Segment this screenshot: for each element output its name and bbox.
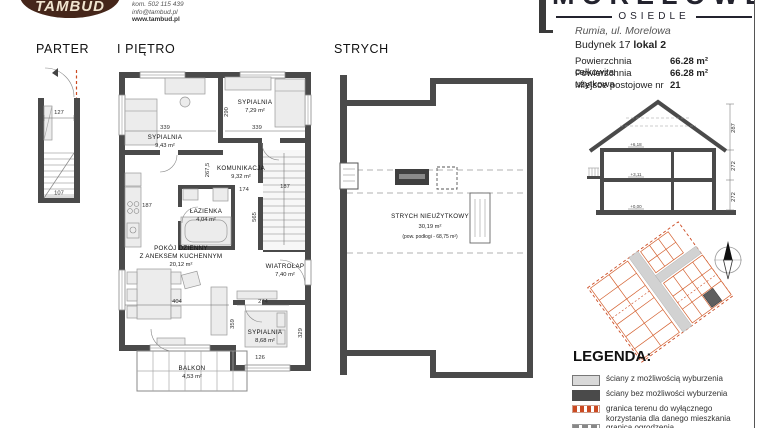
north-arrow-icon	[714, 241, 742, 279]
building-section-drawing: 287 272 272 +6,18 +3,11 +0,00	[582, 88, 750, 220]
legend-title: LEGENDA:	[573, 348, 651, 365]
site-plan	[596, 226, 754, 360]
room-bedroom1: SYPIALNIA	[148, 134, 183, 141]
sofa	[211, 287, 227, 335]
contact-website: www.tambud.pl	[132, 16, 184, 24]
attic-name: STRYCH NIEUŻYTKOWY	[391, 213, 469, 220]
label-strych: STRYCH	[334, 42, 389, 56]
dining-table	[137, 269, 171, 319]
dim: 274	[258, 299, 268, 305]
page-right-border	[754, 0, 755, 428]
estate-lots	[588, 222, 733, 362]
room-area: 7,29 m²	[245, 108, 265, 114]
room-vestibule: WIATROŁAP	[266, 263, 305, 270]
legend-text: ściany bez możliwości wyburzenia	[606, 389, 727, 399]
level-ground: +0,00	[630, 204, 642, 209]
parter-plan: 127 107	[25, 58, 115, 243]
attic-plan: STRYCH NIEUŻYTKOWY 30,19 m² (pow. podłog…	[333, 57, 539, 387]
building-label: Budynek 17	[575, 39, 630, 51]
room-area: 4,53 m²	[182, 374, 202, 380]
project-address: Rumia, ul. Morelowa	[575, 25, 671, 37]
dim: 174	[239, 187, 249, 193]
dim-floor1-height: 272	[731, 161, 737, 171]
room-area: 7,40 m²	[275, 272, 295, 278]
dim: 290	[224, 107, 230, 117]
attic-area: 30,19 m²	[419, 224, 442, 230]
swatch-dark-wall	[572, 390, 600, 401]
sink	[183, 189, 198, 200]
room-area: 8,68 m²	[255, 338, 275, 344]
dim: 339	[252, 125, 262, 131]
dim: 565	[252, 212, 258, 222]
dim: 187	[142, 203, 152, 209]
estate-row: OSIEDLE	[556, 11, 752, 22]
swatch-light-wall	[572, 375, 600, 386]
room-hall: KOMUNIKACJA	[217, 165, 266, 172]
label-parter: PARTER	[36, 42, 89, 56]
room-area: 20,12 m²	[170, 262, 193, 268]
rule-right	[696, 16, 752, 18]
swatch-fence-line	[572, 424, 600, 428]
legend-text: granica terenu do wyłącznego korzystania…	[606, 404, 751, 424]
project-name: MORELOWE	[552, 0, 754, 9]
dim: 126	[255, 355, 265, 361]
legend-text: granica ogrodzenia	[606, 423, 674, 428]
flyer-page: TAMBUD kom. 502 115 439 info@tambud.pl w…	[0, 0, 760, 428]
wardrobe	[237, 291, 277, 299]
swatch-red-dashed	[572, 405, 600, 413]
room-living-2: Z ANEKSEM KUCHENNYM	[140, 253, 223, 260]
parter-dim-bottom: 107	[54, 191, 64, 197]
legend-item-exclusive-area: granica terenu do wyłącznego korzystania…	[572, 404, 752, 424]
dim-attic-height: 287	[731, 123, 737, 133]
dim: 187	[280, 184, 290, 190]
dim: 267,5	[205, 163, 211, 178]
estate-label: OSIEDLE	[618, 11, 689, 22]
contact-email: info@tambud.pl	[132, 9, 184, 17]
first-floor-plan: 339 339 290 267,5 174 187 187 565 404 35…	[113, 57, 315, 407]
project-name-clipped: MORELOWE	[552, 0, 754, 9]
edge-mark-2	[539, 30, 553, 33]
legend-item-walls-fixed: ściany bez możliwości wyburzenia	[572, 389, 752, 401]
room-bedroom2: SYPIALNIA	[238, 99, 273, 106]
rule-left	[556, 16, 612, 18]
unit-label: lokal 2	[633, 39, 666, 51]
chimney-left	[340, 163, 358, 189]
fridge	[125, 173, 141, 186]
legend-item-walls-removable: ściany z możliwością wyburzenia	[572, 374, 752, 386]
room-area: 9,43 m²	[155, 143, 175, 149]
room-area: 4,04 m²	[196, 217, 216, 223]
room-balcony: BALKON	[179, 365, 206, 372]
legend-item-fence: granica ogrodzenia	[572, 423, 752, 428]
tambud-logo: TAMBUD	[20, 0, 120, 18]
building-line: Budynek 17 lokal 2	[575, 39, 666, 51]
level-first: +3,11	[630, 172, 642, 177]
level-attic: +6,18	[630, 142, 642, 147]
parter-dim-top: 127	[54, 110, 64, 116]
logo-text: TAMBUD	[35, 0, 105, 18]
dim: 404	[172, 299, 182, 305]
edge-mark	[539, 0, 546, 31]
room-bedroom3: SYPIALNIA	[248, 329, 283, 336]
roof	[590, 102, 726, 151]
dim: 359	[230, 319, 236, 329]
dim: 329	[298, 328, 304, 338]
tv-stand	[157, 338, 185, 345]
attic-note: (pow. podłogi - 68,75 m²)	[402, 234, 458, 240]
toilet	[213, 188, 228, 201]
label-pietro: I PIĘTRO	[117, 42, 175, 56]
contact-block: kom. 502 115 439 info@tambud.pl www.tamb…	[132, 1, 184, 24]
legend-text: ściany z możliwością wyburzenia	[606, 374, 723, 384]
dim-floor0-height: 272	[731, 192, 737, 202]
room-living: POKÓJ DZIENNY	[154, 245, 208, 252]
section-balcony	[587, 176, 600, 179]
staircase	[263, 150, 305, 250]
room-bathroom: ŁAZIENKA	[190, 208, 223, 215]
contact-phone: kom. 502 115 439	[132, 1, 184, 9]
room-area: 9,32 m²	[231, 174, 251, 180]
dim: 339	[160, 125, 170, 131]
